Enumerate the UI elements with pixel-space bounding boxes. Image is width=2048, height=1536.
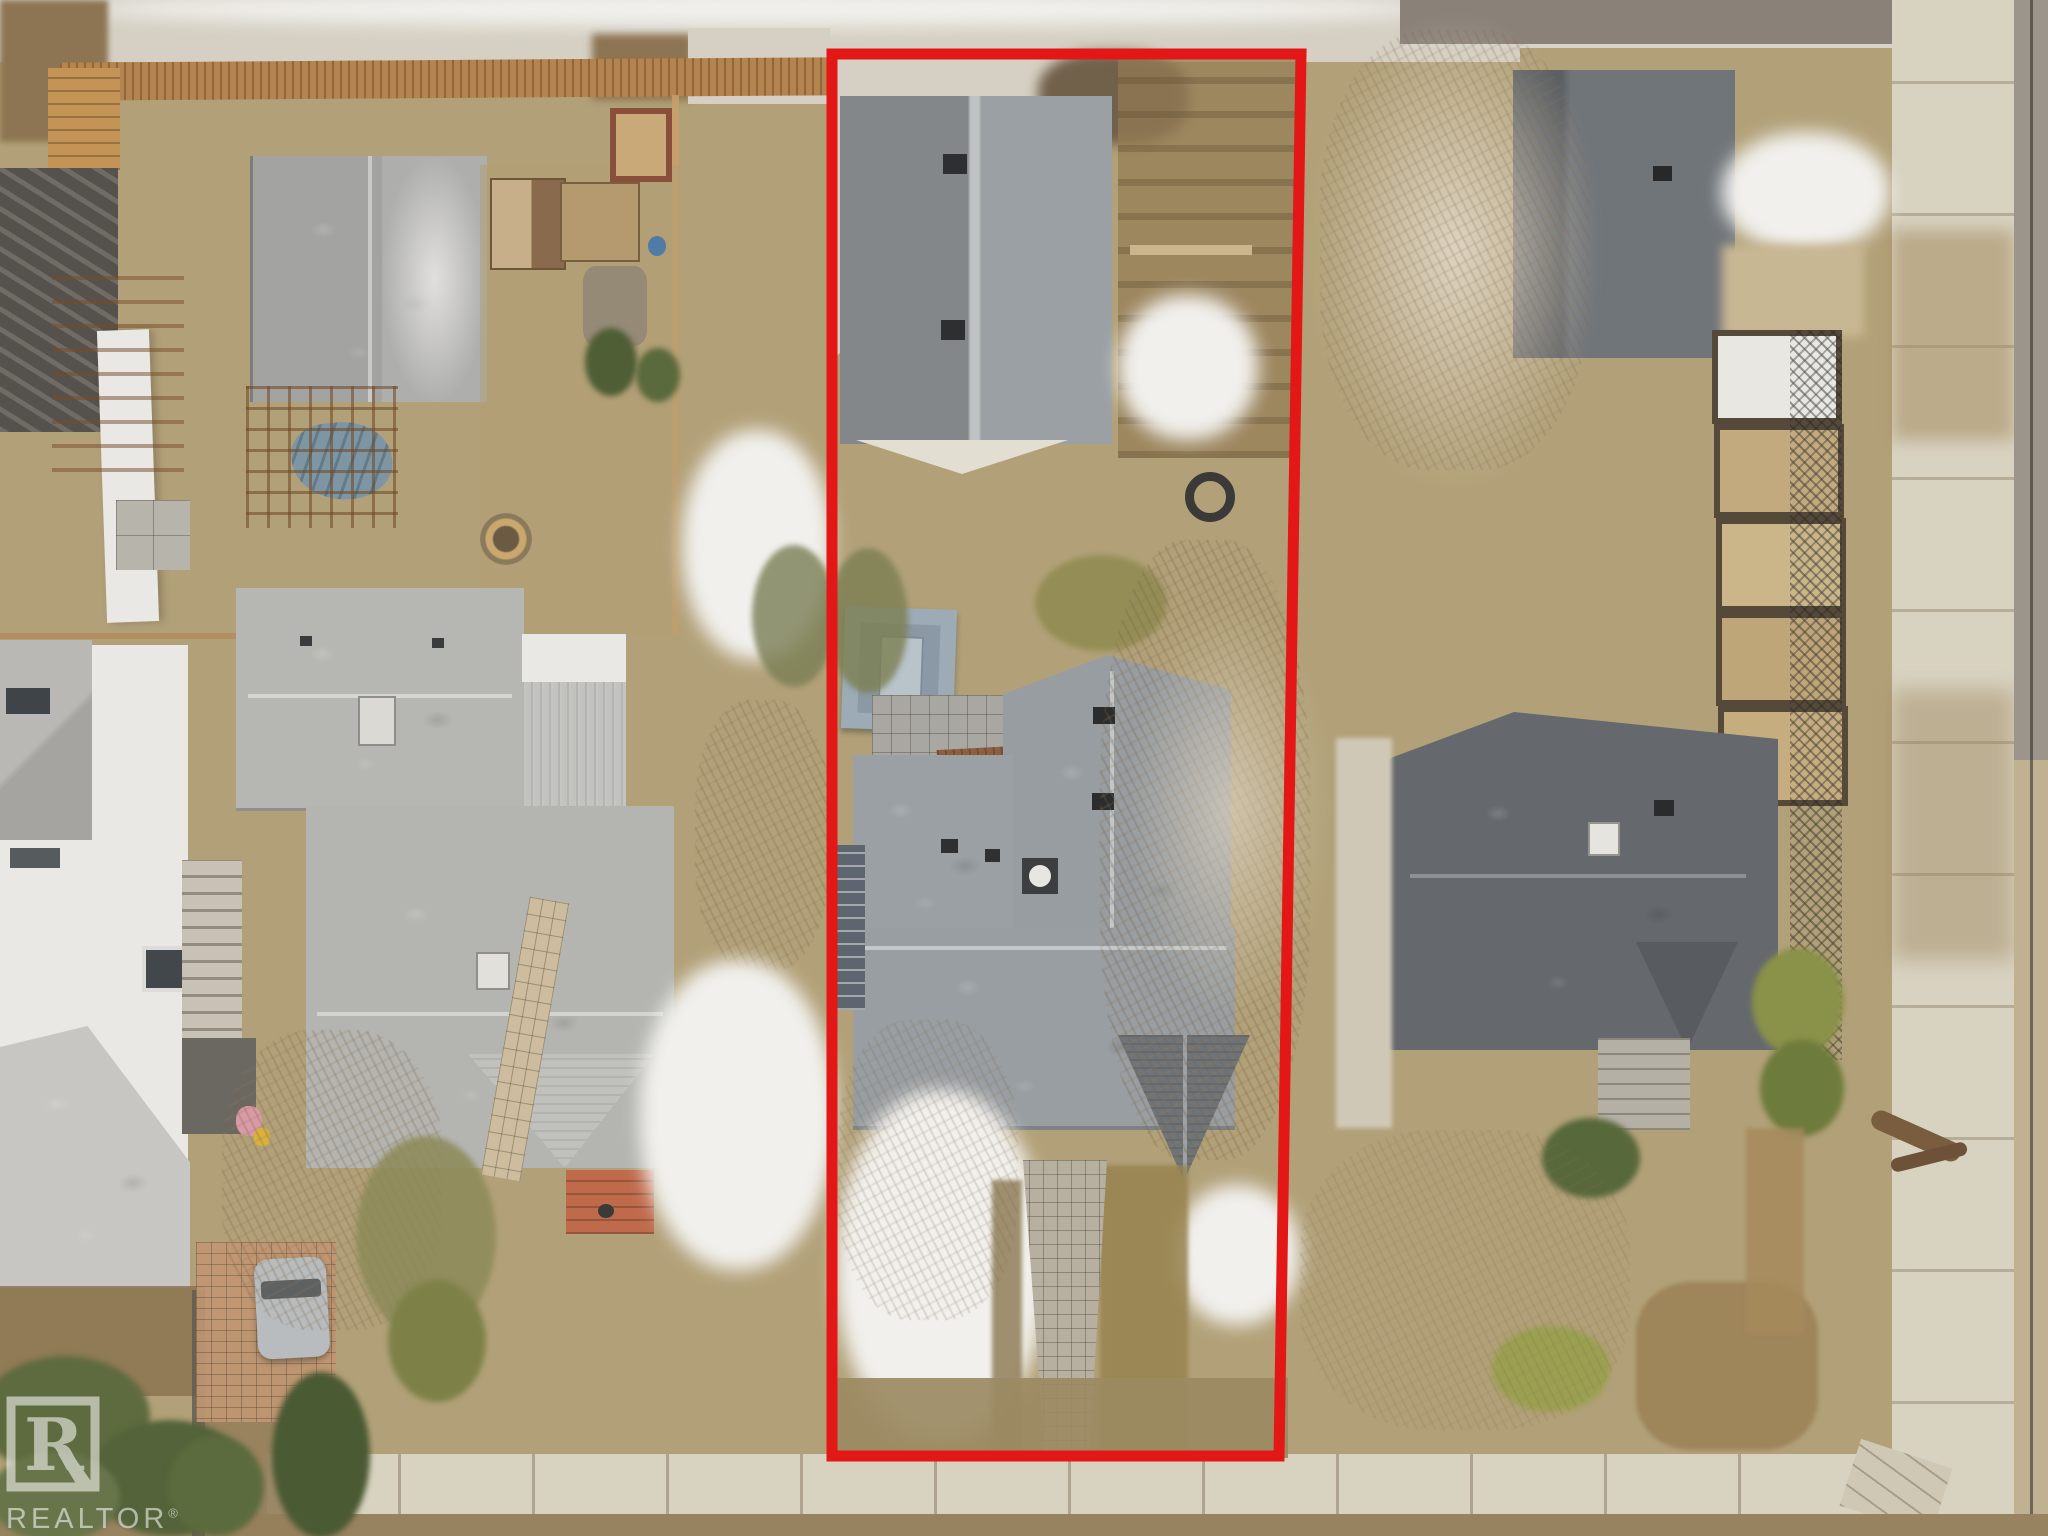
roof-vent	[941, 320, 965, 340]
fire-pit	[477, 510, 535, 568]
center-left-house-upper	[236, 588, 524, 811]
basement-stairs	[831, 845, 865, 1010]
snow-gap-lower	[640, 960, 835, 1270]
bare-tree-front-yard	[838, 1020, 1018, 1320]
front-fence-left	[0, 633, 250, 639]
roof-vent	[432, 638, 444, 648]
white-house-roof-corner	[0, 640, 92, 840]
chimney-flue	[1022, 858, 1058, 894]
chimney	[476, 952, 510, 990]
blue-barrel	[648, 236, 666, 256]
garage-roof	[840, 96, 1112, 444]
window-slot-1	[6, 688, 50, 714]
roof-vent	[1653, 166, 1672, 181]
roof-ridge	[368, 156, 372, 402]
porch-steps-right	[1598, 1038, 1690, 1130]
roof-vent	[941, 839, 958, 853]
bare-branches-right-yard	[1300, 1130, 1630, 1430]
porch-gable	[1636, 942, 1738, 1050]
sidewalk-bottom	[264, 1454, 1940, 1516]
brown-grass-strip-right	[1746, 1128, 1804, 1333]
roof-ridge	[1410, 874, 1746, 878]
roof-vent	[1654, 800, 1674, 816]
gray-green-tree-gap	[752, 545, 836, 687]
realtor-logo-icon: R	[6, 1396, 100, 1492]
shed-small-1	[490, 178, 566, 270]
trellis-frames	[246, 386, 398, 528]
boulevard-scrub-band	[836, 1378, 1288, 1458]
aerial-photo: R REALTOR®	[0, 0, 2048, 1536]
brick-woodbox	[610, 108, 672, 182]
chimney-cap	[1029, 865, 1051, 887]
sidewalk-right-stain-1	[1892, 230, 2014, 440]
roof-vent	[943, 154, 967, 174]
neighbor-house-right	[1378, 712, 1778, 1050]
spruce-bottom	[272, 1372, 370, 1536]
frost-canopy-lot	[1130, 600, 1330, 1020]
deck-stairs	[182, 860, 242, 1065]
olive-tree-canopy-2	[388, 1280, 486, 1402]
bbq-grill	[598, 1204, 614, 1218]
main-house-left-slope	[853, 755, 1013, 940]
bush-bottom	[168, 1436, 264, 1536]
realtor-watermark-text: REALTOR®	[6, 1503, 182, 1536]
window-slot-2	[10, 848, 60, 868]
patio-slabs	[116, 500, 190, 570]
chimney	[358, 696, 396, 746]
bare-tree-top-right	[1320, 30, 1590, 470]
shed-small-2	[560, 182, 640, 262]
realtor-watermark: R REALTOR®	[6, 1396, 182, 1536]
dirt-path-right	[1722, 245, 1864, 337]
bare-tree-gap	[695, 700, 830, 970]
snow-patch-right	[1722, 132, 1890, 252]
white-gable	[522, 634, 626, 682]
alley-fence	[60, 57, 828, 100]
green-shrubs-right-2	[1760, 1040, 1844, 1136]
gray-roof-house-left	[250, 156, 487, 402]
front-yard-snow-right	[1175, 1185, 1300, 1325]
concrete-path-right-house	[1336, 738, 1392, 1128]
roof-vent	[300, 636, 312, 646]
snow-patch-side-yard	[1118, 295, 1258, 440]
roof-snow-dusting	[382, 156, 487, 402]
fence-board	[1130, 245, 1252, 255]
spruce-tree-1	[585, 328, 637, 396]
roof-ridge	[317, 1012, 663, 1016]
red-deck	[566, 1170, 654, 1234]
evergreen-at-lot-edge	[828, 548, 908, 693]
garden-bed-rows	[52, 268, 184, 472]
roof-vent	[985, 849, 1000, 862]
spruce-tree-2	[636, 348, 680, 402]
wood-deck-top-left	[48, 68, 120, 170]
spare-tire	[1185, 472, 1235, 522]
utility-wire	[2030, 0, 2033, 1536]
chimney	[1588, 822, 1620, 856]
sidewalk-right-stain-2	[1892, 690, 2014, 960]
